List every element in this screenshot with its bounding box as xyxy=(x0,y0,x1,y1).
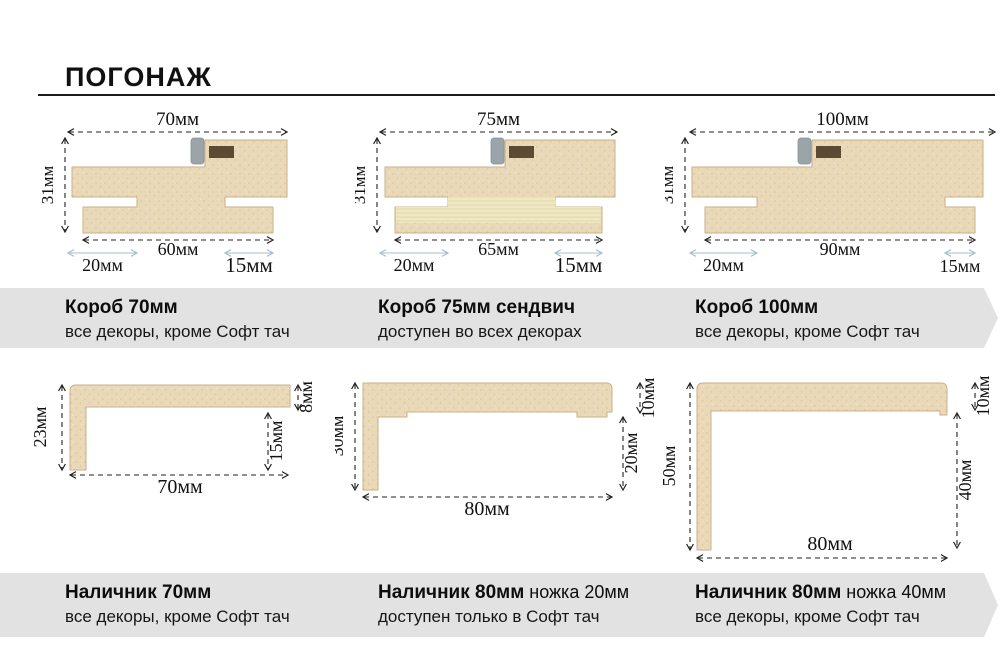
dim-label: 40мм xyxy=(955,460,975,501)
dim-label: 31мм xyxy=(40,166,57,205)
banner-item: Короб 70мм все декоры, кроме Софт тач xyxy=(65,295,290,343)
title-underline xyxy=(38,94,995,96)
dim-label: 31мм xyxy=(355,166,369,205)
product-title: Короб 100мм xyxy=(695,295,920,320)
product-title: Короб 75мм сендвич xyxy=(378,295,582,320)
product-availability: все декоры, кроме Софт тач xyxy=(65,320,290,343)
product-availability: все декоры, кроме Софт тач xyxy=(65,605,290,628)
page-title: ПОГОНАЖ xyxy=(65,62,212,93)
dim-label: 15мм xyxy=(266,421,286,462)
dim-label: 70мм xyxy=(157,476,203,498)
banner-item: Наличник 80мм ножка 20мм доступен только… xyxy=(378,580,629,628)
product-title: Короб 70мм xyxy=(65,295,290,320)
dim-label: 20мм xyxy=(703,255,744,275)
nalichnik-70-diagram: 23мм15мм8мм70мм xyxy=(20,360,340,570)
dim-label: 20мм xyxy=(82,255,123,275)
korob-70-diagram: 70мм31мм60мм20мм15мм xyxy=(40,108,300,283)
section-banner-korob: Короб 70мм все декоры, кроме Софт тач Ко… xyxy=(0,288,1000,348)
dim-label: 30мм xyxy=(335,416,347,457)
dim-label: 10мм xyxy=(973,376,993,417)
dim-label: 80мм xyxy=(807,533,853,555)
banner-item: Короб 100мм все декоры, кроме Софт тач xyxy=(695,295,920,343)
dim-label: 100мм xyxy=(816,109,869,130)
dim-label: 20мм xyxy=(621,433,641,474)
dim-label: 15мм xyxy=(225,253,273,277)
nalichnik-80-40-diagram: 50мм40мм10мм80мм xyxy=(660,358,1000,573)
section-banner-nalichnik: Наличник 70мм все декоры, кроме Софт тач… xyxy=(0,573,1000,637)
banner-item: Короб 75мм сендвич доступен во всех деко… xyxy=(378,295,582,343)
korob-75-sandwich-diagram: 75мм31мм65мм20мм15мм xyxy=(355,108,625,283)
product-availability: доступен во всех декорах xyxy=(378,320,582,343)
dim-label: 50мм xyxy=(660,446,679,487)
dim-label: 10мм xyxy=(638,378,658,419)
product-title: Наличник 80мм ножка 40мм xyxy=(695,580,946,605)
korob-100-diagram: 100мм31мм90мм20мм15мм xyxy=(665,108,1000,283)
nalichnik-80-20-diagram: 30мм20мм10мм80мм xyxy=(335,360,665,570)
product-availability: все декоры, кроме Софт тач xyxy=(695,320,920,343)
dim-label: 8мм xyxy=(296,381,316,413)
dim-label: 80мм xyxy=(464,498,510,520)
dim-label: 70мм xyxy=(156,109,199,130)
banner-item: Наличник 80мм ножка 40мм все декоры, кро… xyxy=(695,580,946,628)
banner-item: Наличник 70мм все декоры, кроме Софт тач xyxy=(65,580,290,628)
dim-label: 20мм xyxy=(394,255,435,275)
dim-label: 90мм xyxy=(820,239,861,259)
dim-label: 15мм xyxy=(555,253,603,277)
product-availability: доступен только в Софт тач xyxy=(378,605,629,628)
dim-label: 75мм xyxy=(477,109,520,130)
dim-label: 15мм xyxy=(940,256,981,276)
product-availability: все декоры, кроме Софт тач xyxy=(695,605,946,628)
dim-label: 31мм xyxy=(665,166,677,205)
product-title: Наличник 70мм xyxy=(65,580,290,605)
page: ПОГОНАЖ 70мм31мм60мм20мм15мм 75мм31мм65м… xyxy=(0,0,1000,648)
dim-label: 23мм xyxy=(30,407,50,448)
product-title: Наличник 80мм ножка 20мм xyxy=(378,580,629,605)
dim-label: 60мм xyxy=(158,239,199,259)
dim-label: 65мм xyxy=(478,239,519,259)
